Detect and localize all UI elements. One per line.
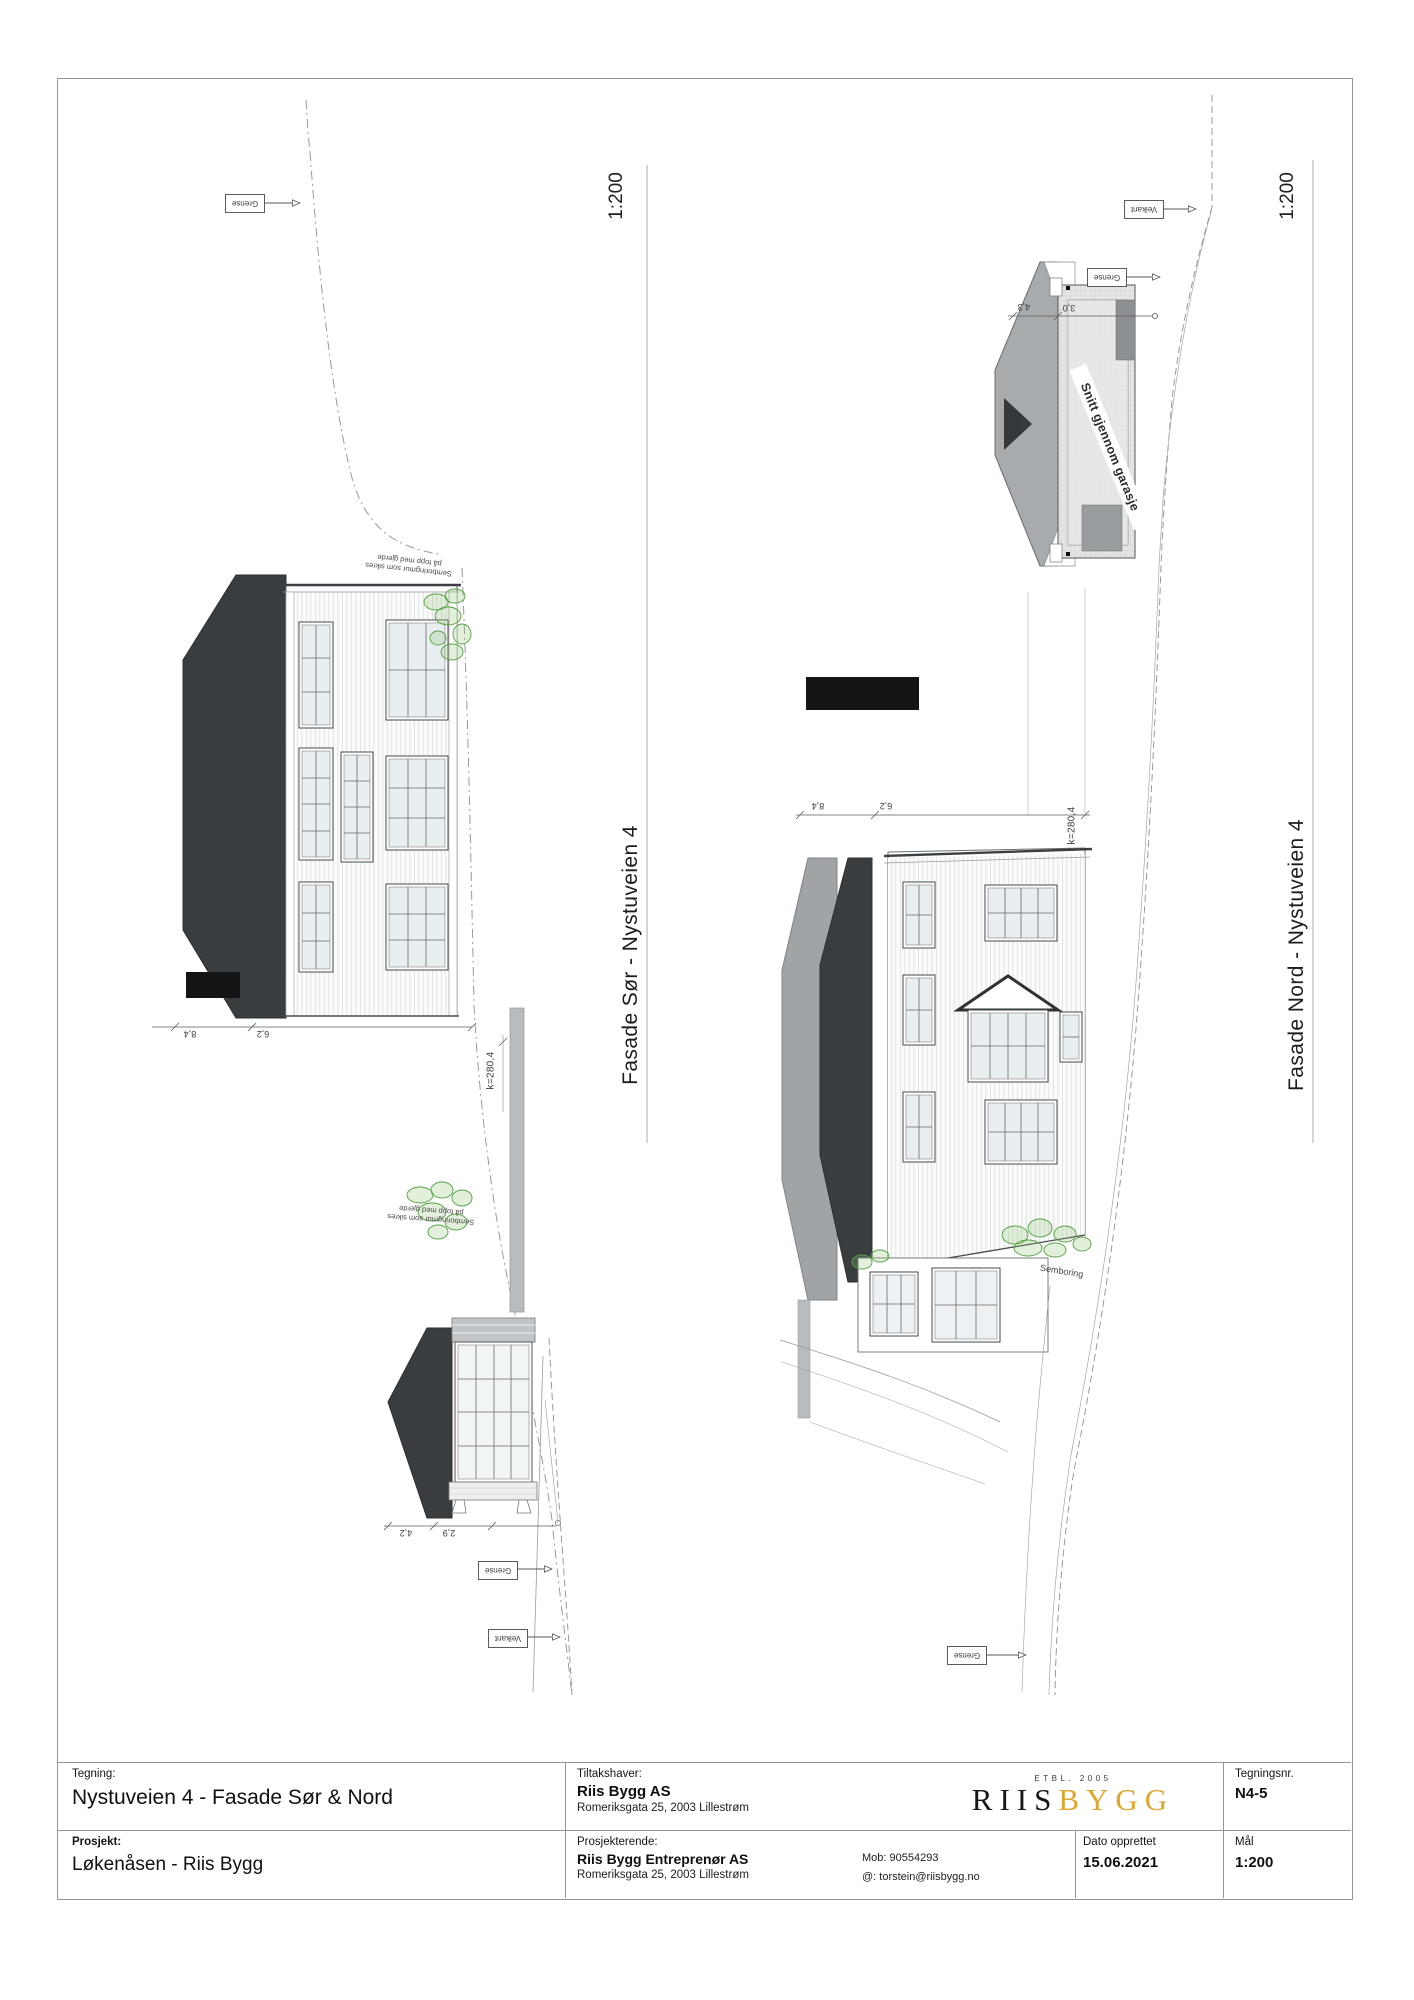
north-grense-garage-callout: Grense bbox=[1087, 268, 1127, 287]
south-axis-label: Fasade Sør - Nystuveien 4 bbox=[619, 805, 643, 1105]
north-dim-6-2: 6,2 bbox=[873, 801, 899, 811]
south-grense-bottom-callout: Grense bbox=[478, 1561, 518, 1580]
prosjekterende-label: Prosjekterende: bbox=[577, 1836, 658, 1848]
south-base-bar bbox=[186, 972, 240, 998]
prosjekt-value: Løkenåsen - Riis Bygg bbox=[72, 1854, 263, 1876]
section-dim-4-3: 4,3 bbox=[1011, 302, 1037, 312]
drawing-title: Nystuveien 4 - Fasade Sør & Nord bbox=[72, 1786, 393, 1810]
south-level-label: k=280,4 bbox=[486, 1043, 497, 1099]
south-grense-top-callout: Grense bbox=[225, 194, 265, 213]
south-facade-drawing bbox=[152, 100, 572, 1695]
north-dark-bar bbox=[806, 677, 919, 710]
north-grense-bottom-callout: Grense bbox=[947, 1646, 987, 1665]
north-scale-label: 1:200 bbox=[1277, 166, 1299, 226]
tiltakshaver-address: Romeriksgata 25, 2003 Lillestrøm bbox=[577, 1802, 749, 1814]
south-garage-drawing bbox=[388, 1318, 537, 1518]
south-wall-strip bbox=[510, 1008, 524, 1312]
maal-label: Mål bbox=[1235, 1836, 1254, 1848]
south-dim-8-4: 8,4 bbox=[177, 1029, 203, 1039]
north-veikant-callout: Veikant bbox=[1124, 200, 1164, 219]
tiltakshaver-label: Tiltakshaver: bbox=[577, 1768, 642, 1780]
contact-mobile: Mob: 90554293 bbox=[862, 1852, 938, 1864]
south-dim-6-2: 6,2 bbox=[250, 1029, 276, 1039]
south-garage-dim-2-9: 2,9 bbox=[436, 1528, 462, 1538]
maal-value: 1:200 bbox=[1235, 1854, 1273, 1871]
drawing-sheet: 1:200 Fasade Sør - Nystuveien 4 1:200 Fa… bbox=[0, 0, 1414, 2000]
north-lower-level bbox=[858, 1258, 1048, 1352]
north-facade-drawing bbox=[780, 95, 1212, 1695]
prosjekterende-name: Riis Bygg Entreprenør AS bbox=[577, 1851, 748, 1867]
logo-bygg: BYGG bbox=[1058, 1782, 1174, 1817]
tegningsnr-label: Tegningsnr. bbox=[1235, 1768, 1294, 1780]
south-garage-dim-4-2: 4,2 bbox=[393, 1528, 419, 1538]
north-level-label: k=280,4 bbox=[1067, 798, 1078, 854]
section-dim-3-0: 3,0 bbox=[1056, 303, 1082, 313]
dato-value: 15.06.2021 bbox=[1083, 1854, 1158, 1871]
north-axis-label: Fasade Nord - Nystuveien 4 bbox=[1285, 805, 1309, 1105]
north-dim-8-4: 8,4 bbox=[805, 801, 831, 811]
tegningsnr-value: N4-5 bbox=[1235, 1785, 1268, 1802]
riisbygg-logo: ETBL. 2005 RIISBYGG bbox=[930, 1774, 1216, 1815]
prosjekterende-address: Romeriksgata 25, 2003 Lillestrøm bbox=[577, 1869, 749, 1881]
prosjekt-label: Prosjekt: bbox=[72, 1836, 121, 1848]
logo-riis: RIIS bbox=[972, 1782, 1059, 1817]
tegning-label: Tegning: bbox=[72, 1768, 115, 1780]
north-dimension-line bbox=[796, 811, 1090, 819]
dato-label: Dato opprettet bbox=[1083, 1836, 1156, 1848]
drawing-linework bbox=[0, 0, 1414, 2000]
tiltakshaver-name: Riis Bygg AS bbox=[577, 1783, 671, 1800]
south-veikant-callout: Veikant bbox=[488, 1629, 528, 1648]
contact-email: @: torstein@riisbygg.no bbox=[862, 1871, 980, 1883]
south-roof bbox=[183, 575, 286, 1018]
south-scale-label: 1:200 bbox=[606, 166, 628, 226]
